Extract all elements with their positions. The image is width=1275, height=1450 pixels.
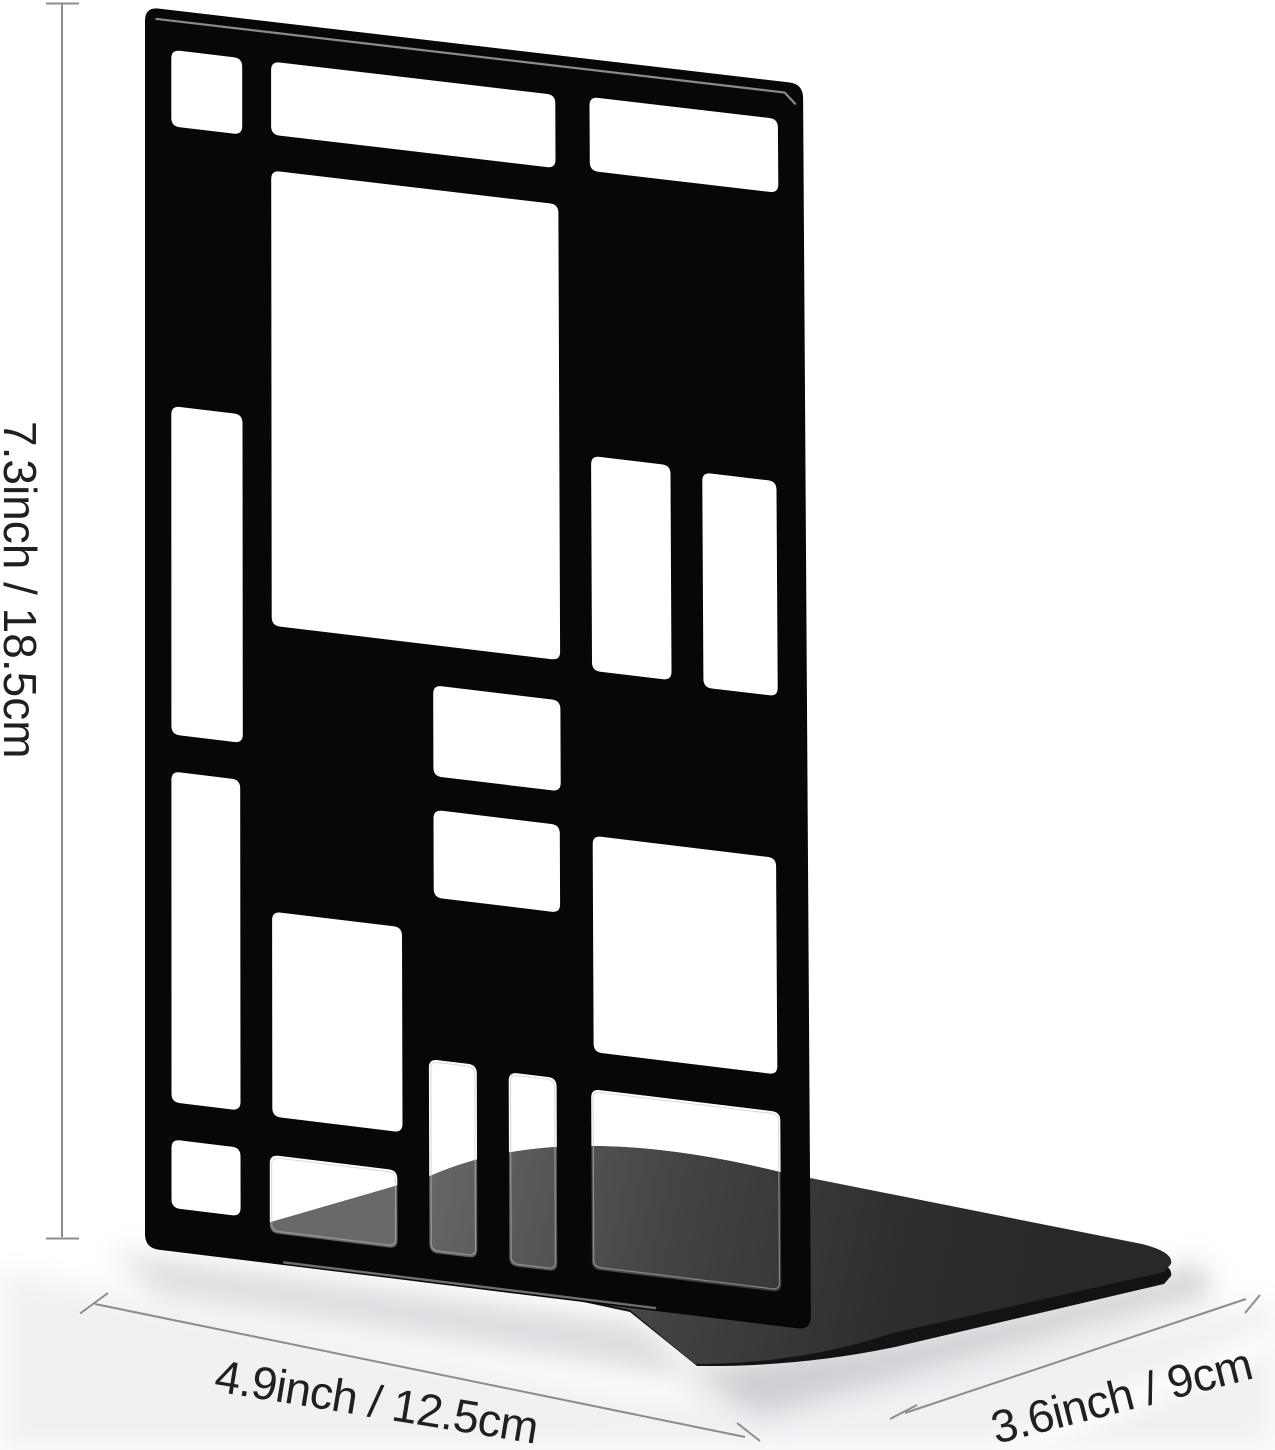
svg-text:7.3inch / 18.5cm: 7.3inch / 18.5cm xyxy=(0,421,46,759)
